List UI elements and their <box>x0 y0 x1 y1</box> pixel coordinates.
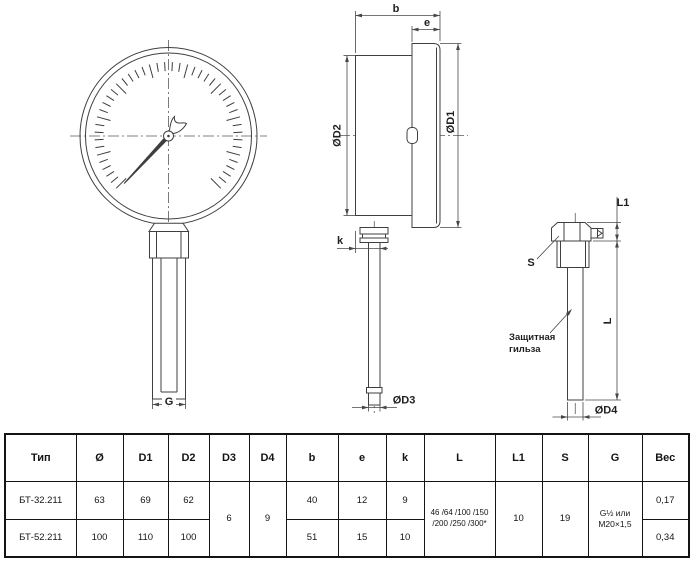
side-nut <box>360 228 388 243</box>
dim-d3: ØD3 <box>352 395 415 412</box>
cell-L1-merged: 10 <box>495 481 542 557</box>
sleeve-callout: Защитная гильза <box>509 309 572 355</box>
cell-type-2: БТ-52.211 <box>5 519 76 557</box>
needle-tail <box>170 117 187 134</box>
spec-table: Тип Ø D1 D2 D3 D4 b e k L L1 S G Вес БТ-… <box>4 433 690 558</box>
header-b: b <box>286 434 338 481</box>
dim-label-d2: ØD2 <box>332 124 344 147</box>
flange-slot <box>407 128 418 144</box>
cell-ves-2: 0,34 <box>642 519 689 557</box>
sleeve-label-line1: Защитная <box>509 332 555 343</box>
cell-type-1: БТ-32.211 <box>5 481 76 519</box>
case-body <box>356 56 413 216</box>
cell-d1-2: 110 <box>123 519 168 557</box>
technical-drawing: G b e <box>0 0 700 430</box>
front-view: G <box>70 40 267 409</box>
header-e: e <box>338 434 386 481</box>
dim-L: L <box>585 241 621 400</box>
dim-label-b: b <box>393 3 400 15</box>
dim-e: e <box>412 17 440 42</box>
header-d1: D1 <box>123 434 168 481</box>
dim-label-L: L <box>602 317 614 324</box>
header-type: Тип <box>5 434 76 481</box>
cell-dia-1: 63 <box>76 481 123 519</box>
cell-d4-merged: 9 <box>249 481 286 557</box>
cell-k-2: 10 <box>386 519 424 557</box>
dim-label-d1: ØD1 <box>445 111 457 134</box>
needle-hub-dot <box>167 135 170 138</box>
header-L: L <box>424 434 495 481</box>
cell-G-line2: M20×1,5 <box>589 519 642 530</box>
header-G: G <box>588 434 642 481</box>
dim-label-G: G <box>165 396 174 408</box>
cell-dia-2: 100 <box>76 519 123 557</box>
gauge-stem <box>153 258 186 399</box>
side-stem-band <box>367 388 383 394</box>
cell-d1-1: 69 <box>123 481 168 519</box>
dim-label-d4: ØD4 <box>595 405 619 417</box>
cell-S-merged: 19 <box>542 481 588 557</box>
dim-label-k: k <box>337 235 344 247</box>
gauge-neck <box>149 223 189 231</box>
cell-L-line1: 46 /64 /100 /150 <box>425 508 495 518</box>
cell-b-1: 40 <box>286 481 338 519</box>
sleeve-view: S Защитная гильза L1 L <box>509 197 629 421</box>
sleeve-tube <box>568 268 584 401</box>
label-S: S <box>527 236 559 269</box>
cell-G-line1: G½ или <box>589 508 642 519</box>
sleeve-collar <box>557 241 589 268</box>
header-d2: D2 <box>168 434 209 481</box>
side-stem <box>369 243 381 406</box>
cell-d2-2: 100 <box>168 519 209 557</box>
page: { "drawing": { "stroke_color": "#3f3f3f"… <box>0 0 700 564</box>
header-ves: Вес <box>642 434 689 481</box>
cell-d3-merged: 6 <box>209 481 249 557</box>
dim-label-e: e <box>424 17 430 29</box>
cell-b-2: 51 <box>286 519 338 557</box>
cell-e-2: 15 <box>338 519 386 557</box>
dim-label-S: S <box>527 257 534 269</box>
header-d4: D4 <box>249 434 286 481</box>
cell-d2-1: 62 <box>168 481 209 519</box>
dim-label-d3: ØD3 <box>393 395 416 407</box>
needle <box>124 135 170 184</box>
header-S: S <box>542 434 588 481</box>
cell-e-1: 12 <box>338 481 386 519</box>
spec-table-section: Тип Ø D1 D2 D3 D4 b e k L L1 S G Вес БТ-… <box>4 433 690 558</box>
table-header-row: Тип Ø D1 D2 D3 D4 b e k L L1 S G Вес <box>5 434 689 481</box>
side-view: b e ØD2 ØD1 <box>332 3 469 413</box>
cell-ves-1: 0,17 <box>642 481 689 519</box>
header-k: k <box>386 434 424 481</box>
cell-G-merged: G½ или M20×1,5 <box>588 481 642 557</box>
table-row-bt32: БТ-32.211 63 69 62 6 9 40 12 9 46 /64 /1… <box>5 481 689 519</box>
dim-L1: L1 <box>587 197 629 248</box>
dim-label-L1: L1 <box>617 197 630 209</box>
cell-k-1: 9 <box>386 481 424 519</box>
cell-L-merged: 46 /64 /100 /150 /200 /250 /300* <box>424 481 495 557</box>
dim-d4: ØD4 <box>553 402 619 421</box>
gauge-hex-nut <box>150 232 189 259</box>
header-dia: Ø <box>76 434 123 481</box>
header-L1: L1 <box>495 434 542 481</box>
header-d3: D3 <box>209 434 249 481</box>
sleeve-label-line2: гильза <box>509 344 541 355</box>
cell-L-line2: /200 /250 /300* <box>425 519 495 529</box>
